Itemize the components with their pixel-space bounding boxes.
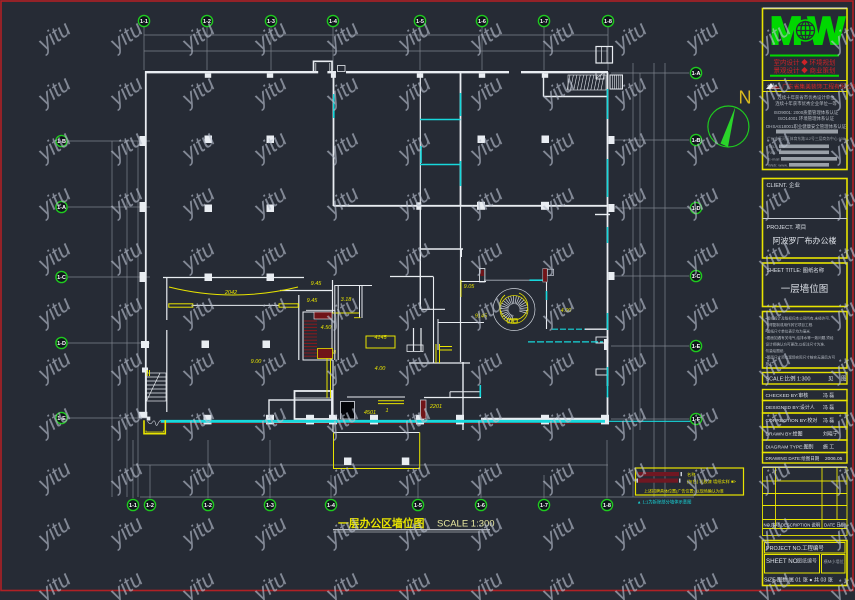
svg-text:连续十年获市优秀企业单位一等: 连续十年获市优秀企业单位一等 — [775, 100, 837, 107]
svg-text:SHEET NO.: SHEET NO. — [766, 558, 800, 565]
svg-text:N: N — [739, 88, 752, 108]
svg-text:1-7: 1-7 — [540, 503, 548, 509]
svg-text:1-5: 1-5 — [414, 503, 422, 509]
svg-text:ISO14001 环境管理体系认证: ISO14001 环境管理体系认证 — [778, 115, 835, 122]
svg-text:1-7: 1-7 — [540, 19, 548, 25]
svg-text:景观设计 ◆ 商业策划: 景观设计 ◆ 商业策划 — [773, 66, 835, 75]
svg-text:1-D: 1-D — [57, 341, 66, 347]
svg-text:冯 磊: 冯 磊 — [823, 392, 834, 399]
svg-text:1-6: 1-6 — [477, 503, 485, 509]
svg-text:一层墙位图: 一层墙位图 — [781, 283, 829, 295]
svg-text:4.50: 4.50 — [321, 325, 333, 331]
svg-text:1-1: 1-1 — [129, 503, 137, 509]
svg-text:▲ 1:1为拆除部分墙体示意图: ▲ 1:1为拆除部分墙体示意图 — [637, 499, 691, 506]
svg-text:1-8: 1-8 — [603, 503, 611, 509]
svg-text:横M小墙位: 横M小墙位 — [824, 558, 844, 565]
svg-text:施 工: 施 工 — [823, 443, 834, 450]
svg-text:1-2: 1-2 — [146, 503, 154, 509]
svg-text:ISO9001: 2000质量管理体系认证: ISO9001: 2000质量管理体系认证 — [774, 109, 839, 116]
svg-text:1: 1 — [385, 408, 388, 414]
svg-text:1-1: 1-1 — [140, 19, 148, 25]
svg-text:室内设计 ◆ 环境规划: 室内设计 ◆ 环境规划 — [773, 58, 835, 67]
svg-text:4145: 4145 — [374, 335, 387, 341]
svg-text:9.05: 9.05 — [464, 284, 476, 290]
svg-text:9.45: 9.45 — [311, 281, 323, 287]
svg-text:设计师确认方可更改,以标注尺寸为准,: 设计师确认方可更改,以标注尺寸为准, — [766, 342, 826, 347]
svg-text:图纸编号: 图纸编号 — [797, 558, 817, 565]
svg-text:1-C: 1-C — [57, 275, 66, 281]
svg-text:1-2: 1-2 — [204, 503, 212, 509]
svg-text:1-8: 1-8 — [604, 19, 612, 25]
svg-text:DIAGRAM TYPE:图别: DIAGRAM TYPE:图别 — [766, 443, 814, 450]
svg-text:CHECKED BY:审核: CHECKED BY:审核 — [766, 392, 809, 399]
svg-text:▪图面如遇有关电气,给排水等一致问题,须经: ▪图面如遇有关电气,给排水等一致问题,须经 — [766, 335, 834, 340]
svg-text:9.45: 9.45 — [307, 298, 319, 304]
svg-text:4.00: 4.00 — [375, 366, 387, 372]
svg-text:2006.05: 2006.05 — [825, 456, 843, 462]
svg-text:1-4: 1-4 — [327, 503, 336, 509]
svg-text:冯 磊: 冯 磊 — [823, 404, 834, 411]
svg-text:1-E: 1-E — [692, 344, 701, 350]
svg-text:PROJECT. 项目: PROJECT. 项目 — [767, 224, 807, 231]
svg-text:1-3: 1-3 — [266, 503, 274, 509]
svg-text:1-A: 1-A — [692, 71, 701, 77]
svg-text:▪图纸尺寸单位表示均为毫米.: ▪图纸尺寸单位表示均为毫米. — [766, 329, 811, 334]
svg-text:Web: www.: Web: www. — [768, 163, 788, 168]
svg-text:2042: 2042 — [224, 290, 237, 296]
svg-text:上述招牌具体位置(广告位置) 以现场确认为准: 上述招牌具体位置(广告位置) 以现场确认为准 — [644, 488, 724, 494]
svg-text:4501: 4501 — [364, 410, 376, 416]
svg-text:2201: 2201 — [429, 404, 442, 410]
